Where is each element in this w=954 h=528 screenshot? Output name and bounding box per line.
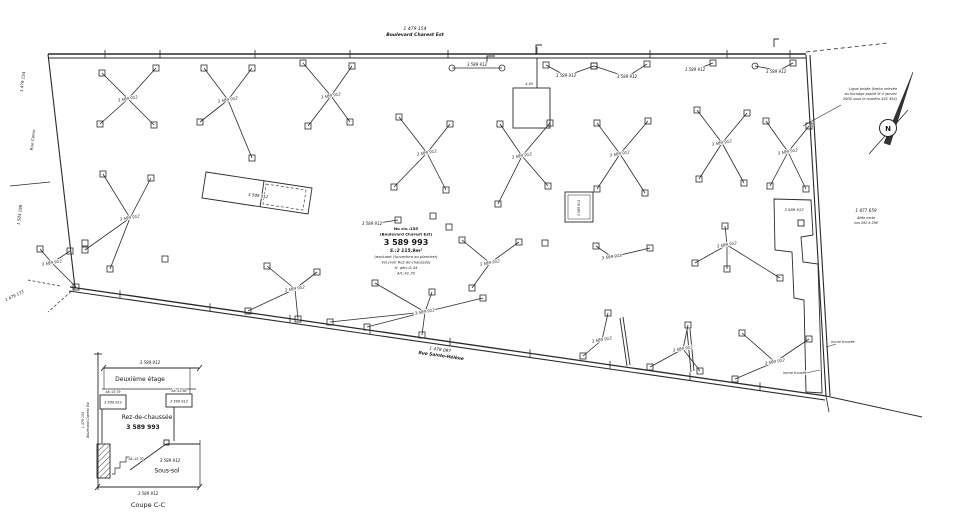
servitude-label: 3 589 912 <box>467 62 488 67</box>
column-leader-line <box>248 289 295 311</box>
square-structure <box>513 88 550 128</box>
column-leader-line <box>770 152 788 186</box>
north-note: 2000 sous le numéro 452 454) <box>843 97 898 101</box>
column-leader-line <box>766 121 788 152</box>
column-marker <box>430 213 436 219</box>
section-lot-label: 3 589 912 <box>104 401 123 405</box>
right-lot-note: Allée verte <box>856 216 875 220</box>
section-lot-label: 3 589 912 <box>170 400 189 404</box>
parcel-note: (excluant l'ouverture au plancher) <box>374 255 438 259</box>
column-leader-line <box>394 153 427 187</box>
street-lot-top: 1 479 154 <box>404 26 427 32</box>
section-floor2-label: Deuxième étage <box>115 376 165 383</box>
cluster-lot-label: 3 589 912 <box>320 91 341 100</box>
section-street-name: Boulevard Charest Est <box>86 401 90 437</box>
north-note: au bornage publié le 4 janvier <box>844 92 897 96</box>
cluster-lot-label: 3 589 912 <box>416 148 437 157</box>
parcel-street-ref: (Boulevard Charest Est) <box>380 232 433 237</box>
column-leader-line <box>620 121 648 154</box>
column-leader-line <box>103 174 130 218</box>
column-marker <box>644 61 650 67</box>
cluster-lot-label: 3 589 912 <box>511 151 532 160</box>
structure-lot-label: 3 589 912 <box>248 192 269 200</box>
cluster-lot-label: 3 589 912 <box>591 335 612 344</box>
dimension-label: 4,40 <box>525 82 533 86</box>
column-leader-line <box>110 218 130 269</box>
parcel-lot-number: 3 589 993 <box>384 238 429 247</box>
cluster-lot-label: 3 589 912 <box>479 258 500 267</box>
cluster-lot-label: 3 589 912 <box>41 258 62 267</box>
section-drawing <box>94 352 202 490</box>
north-note: Ligne brisée (limite relevée <box>849 87 897 91</box>
column-leader-line <box>522 156 548 186</box>
parcel-note: Vol.(voir Rez-de-chaussée) <box>381 261 431 265</box>
cluster-lot-label: 3 589 912 <box>672 344 693 353</box>
left-lot-mid: 1 503 199 <box>16 204 23 225</box>
section-lot-label: 3 589 912 <box>140 360 161 365</box>
column-leader-line <box>295 289 298 319</box>
column-leader-line <box>130 178 151 218</box>
left-lot-corner: 1 479 173 <box>4 289 25 302</box>
section-parcel-lot: 3 589 993 <box>126 424 159 431</box>
column-leader-line <box>102 73 128 99</box>
column-leader-line <box>597 154 620 189</box>
parcel-height: H. gén.:2,44 <box>395 266 418 270</box>
column-leader-line <box>498 156 522 204</box>
cluster-lot-label: 3 589 912 <box>556 73 577 78</box>
column-leader-line <box>722 143 744 183</box>
column-leader-line <box>331 96 350 122</box>
cluster-lot-label: 3 589 912 <box>685 67 706 72</box>
column-leader-line <box>697 110 722 143</box>
cluster-lot-label: 3 589 913 <box>601 253 622 261</box>
column-leader-line <box>462 240 490 263</box>
cluster-lot-label: 3 589 912 <box>119 213 140 222</box>
cluster-lot-label: 3 589 912 <box>617 74 638 79</box>
column-leader-line <box>727 245 780 278</box>
section-lot-label: 3 589 912 <box>160 458 181 463</box>
column-leader-line <box>427 153 446 190</box>
parcel-altitude: Alt.:41,70 <box>396 272 416 276</box>
cluster-lot-label: 3 589 912 <box>609 149 630 158</box>
column-leader-line <box>597 123 620 154</box>
structure-lot-label: 3 589 913 <box>577 200 581 216</box>
column-leader-line <box>303 63 331 96</box>
right-lot-note: nos 292 à 296 <box>854 221 878 225</box>
column-leader-line <box>85 218 130 250</box>
column-leader-line <box>375 283 425 312</box>
section-lot-label: 3 589 912 <box>138 491 159 496</box>
cluster-lot-label: 3 589 912 <box>766 69 787 74</box>
column-leader-line <box>228 100 252 158</box>
section-alt-label: Alt.:43,88 <box>170 389 186 393</box>
cluster-lot-label: 3 589 912 <box>711 138 732 147</box>
section-alt-label: Alt.:41,70 <box>127 457 143 461</box>
monument-note: borne trouvée <box>783 371 806 375</box>
cluster-lot-label: 3 589 912 <box>764 357 785 366</box>
column-leader-line <box>204 68 228 100</box>
stepped-structure <box>774 199 822 393</box>
column-leader-line <box>228 68 252 100</box>
street-name-left: Rue Caron <box>29 129 37 151</box>
scanned-survey-plan-page: 1 479 154Boulevard Charest Est1 479 097R… <box>0 0 954 528</box>
section-basement-label: Sous-sol <box>154 468 179 475</box>
column-leader-line <box>699 143 722 179</box>
column-marker <box>82 240 88 246</box>
section-floor1-label: Rez-de-chaussée <box>122 414 173 421</box>
right-lot: 1 477 659 <box>855 208 877 213</box>
parcel-civic: No civ.:155 <box>394 226 419 231</box>
column-leader-line <box>422 312 425 335</box>
column-leader-line <box>620 154 645 193</box>
section-title: Coupe C-C <box>131 501 166 509</box>
building-structures <box>202 39 822 393</box>
column-marker <box>542 240 548 246</box>
column-leader-line <box>330 312 425 322</box>
site-plan-drawing: 1 479 154Boulevard Charest Est1 479 097R… <box>0 0 954 528</box>
column-leader-line <box>200 100 228 122</box>
column-leader-line <box>399 117 427 153</box>
monument-note: borne trouvée <box>831 340 854 344</box>
column-leader-line <box>100 99 128 124</box>
cluster-lot-label: 3 589 912 <box>777 147 798 156</box>
column-leader-line <box>500 124 522 156</box>
section-alt-label: Alt.:43,79 <box>104 390 120 394</box>
section-street-lot: 1 479 154 <box>81 412 85 428</box>
cluster-lot-label: 3 589 912 <box>217 95 238 104</box>
north-letter: N <box>885 125 891 133</box>
column-leader-line <box>742 333 775 362</box>
cluster-lot-label: 3 589 912 <box>362 221 383 226</box>
column-marker <box>162 256 168 262</box>
parcel-area: S.:2 115,9m² <box>390 248 422 254</box>
column-leader-line <box>267 266 295 289</box>
column-leader-line <box>472 263 490 288</box>
column-leader-line <box>128 99 154 125</box>
street-name-top: Boulevard Charest Est <box>386 32 444 38</box>
column-leader-line <box>308 96 331 126</box>
cluster-lot-label: 3 589 912 <box>117 94 138 103</box>
column-leader-line <box>788 152 806 189</box>
structure-lot-label: 3 589 912 <box>784 207 804 212</box>
column-marker <box>446 224 452 230</box>
left-lot-top: 1 479 154 <box>19 71 26 92</box>
column-clusters <box>37 47 812 391</box>
